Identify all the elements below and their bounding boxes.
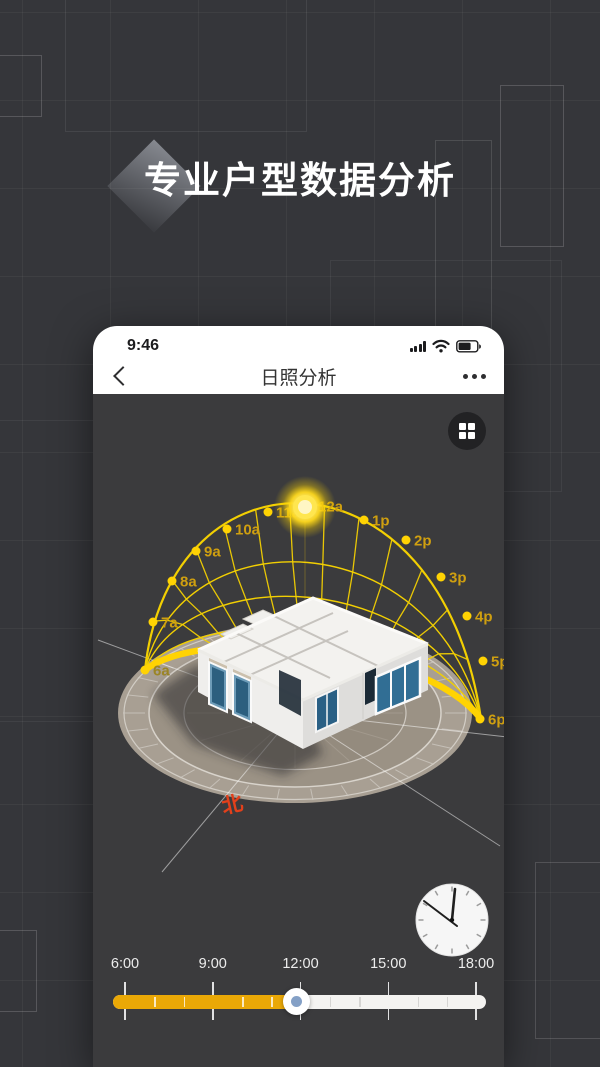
grid-icon	[459, 423, 476, 440]
slider-minor-tick	[242, 997, 244, 1007]
hour-marker-label: 2p	[414, 533, 432, 550]
hero-title: 专业户型数据分析	[0, 150, 600, 204]
nav-title: 日照分析	[93, 363, 504, 390]
hour-marker-label: 7a	[161, 615, 178, 632]
back-button[interactable]	[103, 358, 139, 394]
hour-marker-label: 9a	[204, 544, 221, 561]
time-slider: 6:009:0012:0015:0018:00	[93, 946, 504, 1036]
deco-rect	[65, 0, 307, 132]
deco-rect	[535, 862, 600, 1039]
back-chevron-icon	[113, 366, 133, 386]
hour-marker-label: 10a	[235, 522, 261, 539]
slider-tick-label: 6:00	[111, 956, 139, 972]
slider-minor-tick	[154, 997, 156, 1007]
nav-bar: 日照分析	[93, 358, 504, 394]
more-button[interactable]	[457, 358, 492, 394]
hour-marker-label: 1p	[372, 513, 390, 530]
status-time: 9:46	[127, 337, 159, 355]
ellipsis-icon	[463, 374, 468, 379]
slider-tick-label: 15:00	[370, 956, 406, 972]
hour-marker-label: 4p	[475, 609, 493, 626]
slider-minor-tick	[418, 997, 420, 1007]
deco-rect	[0, 930, 37, 1012]
slider-minor-tick	[271, 997, 273, 1007]
slider-minor-tick	[359, 997, 361, 1007]
hour-marker-label: 6p	[488, 712, 504, 729]
hour-marker-label: 6a	[153, 663, 170, 680]
page: { "hero": { "title": "专业户型数据分析" }, "phon…	[0, 0, 600, 1067]
sunlight-canvas: 6a7a8a9a10a11a12a1p2p3p4p5p6p	[93, 394, 504, 1067]
sun-icon	[274, 476, 336, 538]
slider-handle[interactable]	[283, 988, 310, 1015]
slider-minor-tick	[447, 997, 449, 1007]
hour-marker-label: 3p	[449, 570, 467, 587]
slider-tick-label: 9:00	[199, 956, 227, 972]
slider-minor-tick	[184, 997, 186, 1007]
slider-tick-label: 12:00	[282, 956, 318, 972]
side-doorway	[365, 668, 376, 705]
status-bar: 9:46	[93, 326, 504, 358]
hour-marker-label: 8a	[180, 574, 197, 591]
wifi-icon	[432, 339, 450, 353]
phone-mockup: 9:46 日照分析	[93, 326, 504, 1067]
hour-marker-label: 5p	[491, 654, 504, 671]
slider-tick-label: 18:00	[458, 956, 494, 972]
layout-grid-button[interactable]	[448, 412, 486, 450]
slider-minor-tick	[330, 997, 332, 1007]
battery-icon	[456, 340, 482, 353]
status-icons	[410, 339, 483, 353]
deco-rect	[0, 55, 42, 117]
signal-bars-icon	[410, 341, 427, 352]
